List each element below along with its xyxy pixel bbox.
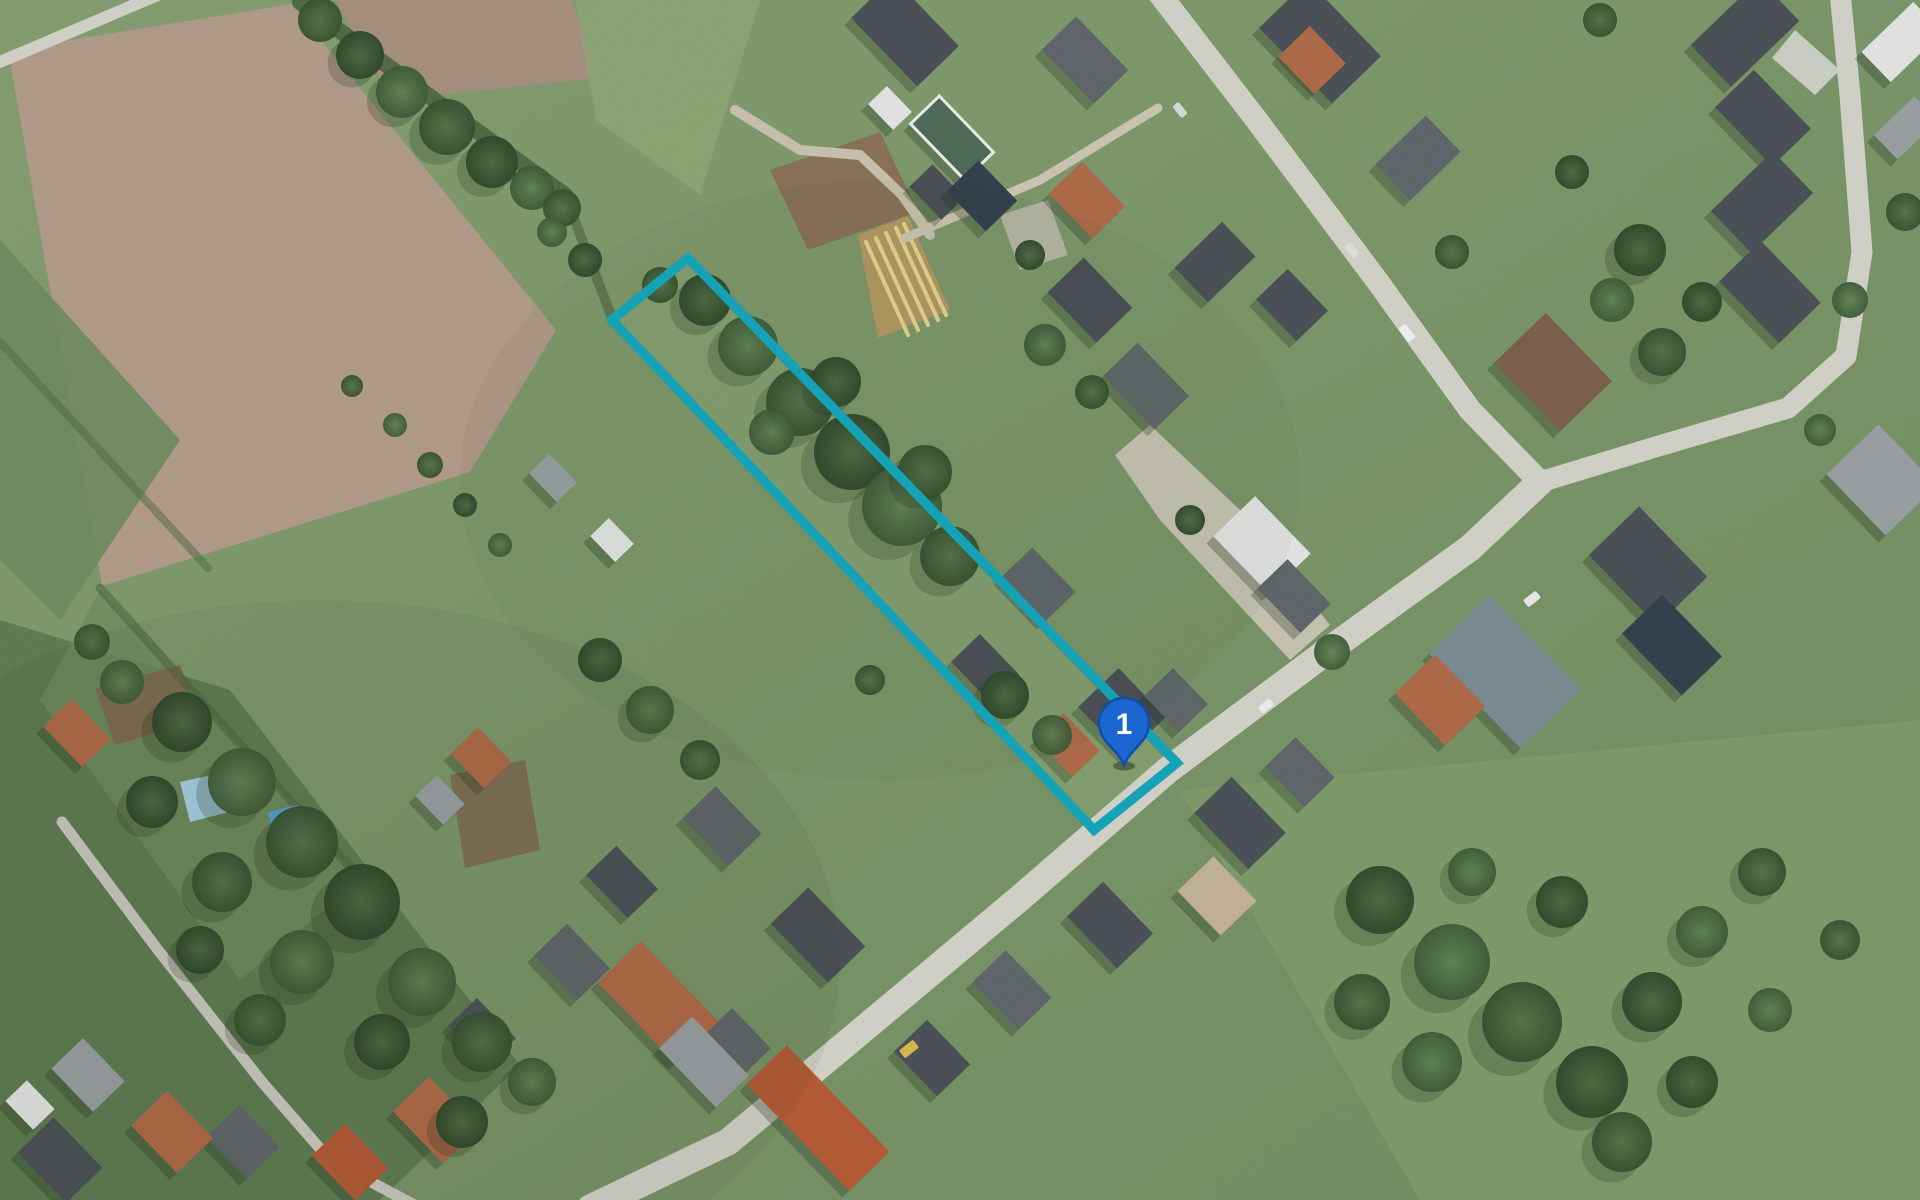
satellite-map-view[interactable]: 1: [0, 0, 1920, 1200]
parcel-overlay: [0, 0, 1920, 1200]
marker-label: 1: [1116, 708, 1133, 741]
map-marker[interactable]: 1: [1084, 681, 1164, 773]
